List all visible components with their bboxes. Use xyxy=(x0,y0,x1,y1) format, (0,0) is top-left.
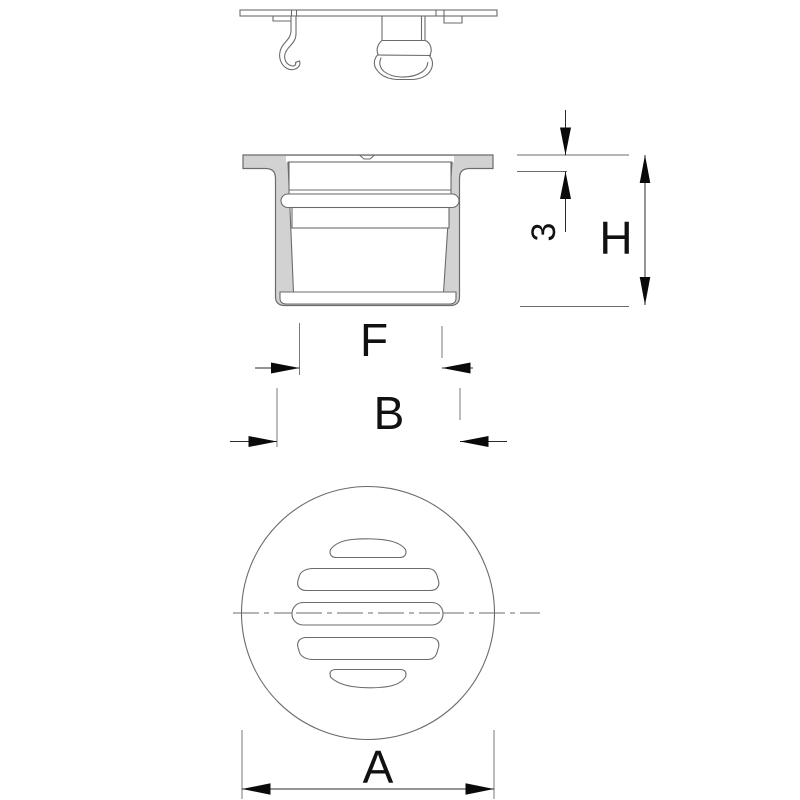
grate-slot xyxy=(298,569,439,591)
plate-outline xyxy=(240,10,497,16)
insert-upper-body xyxy=(289,162,451,194)
right-clip-midline xyxy=(378,55,431,56)
dim-inner-width-label: F xyxy=(360,314,388,366)
arrowhead xyxy=(640,277,651,305)
arrowhead xyxy=(640,155,651,183)
arrowhead xyxy=(460,436,489,447)
top-clip-view xyxy=(240,10,497,80)
dim-body-width-label: B xyxy=(374,387,405,439)
grate-slot xyxy=(292,603,443,626)
arrowhead xyxy=(560,128,571,156)
right-clip-bulb xyxy=(374,41,432,80)
left-spring-hook xyxy=(280,16,300,70)
dim-grate-diameter-label: A xyxy=(363,741,394,793)
section-view xyxy=(243,155,493,306)
grate-slot xyxy=(298,638,439,660)
dim-grate-diameter: A xyxy=(242,730,494,799)
plate-lip-left xyxy=(273,16,292,21)
insert-lower-body xyxy=(292,208,449,229)
arrowhead xyxy=(242,783,271,794)
arrowhead xyxy=(442,363,471,374)
dim-body-width: B xyxy=(230,387,507,447)
technical-drawing-canvas: 3 H F B xyxy=(0,0,800,800)
arrowhead xyxy=(560,172,571,200)
arrowhead xyxy=(466,783,495,794)
dim-height-label: H xyxy=(599,212,632,264)
seal-ring xyxy=(281,194,459,208)
grate-slot xyxy=(330,539,406,558)
dim-inner-width: F xyxy=(255,314,473,375)
dim-thickness-label: 3 xyxy=(525,223,563,242)
arrowhead xyxy=(271,363,300,374)
plate-lip-right xyxy=(444,16,462,23)
outlet-lip xyxy=(280,292,456,304)
grate-plan-view xyxy=(233,487,540,740)
technical-drawing-page: 3 H F B xyxy=(0,0,800,800)
arrowhead xyxy=(249,436,278,447)
